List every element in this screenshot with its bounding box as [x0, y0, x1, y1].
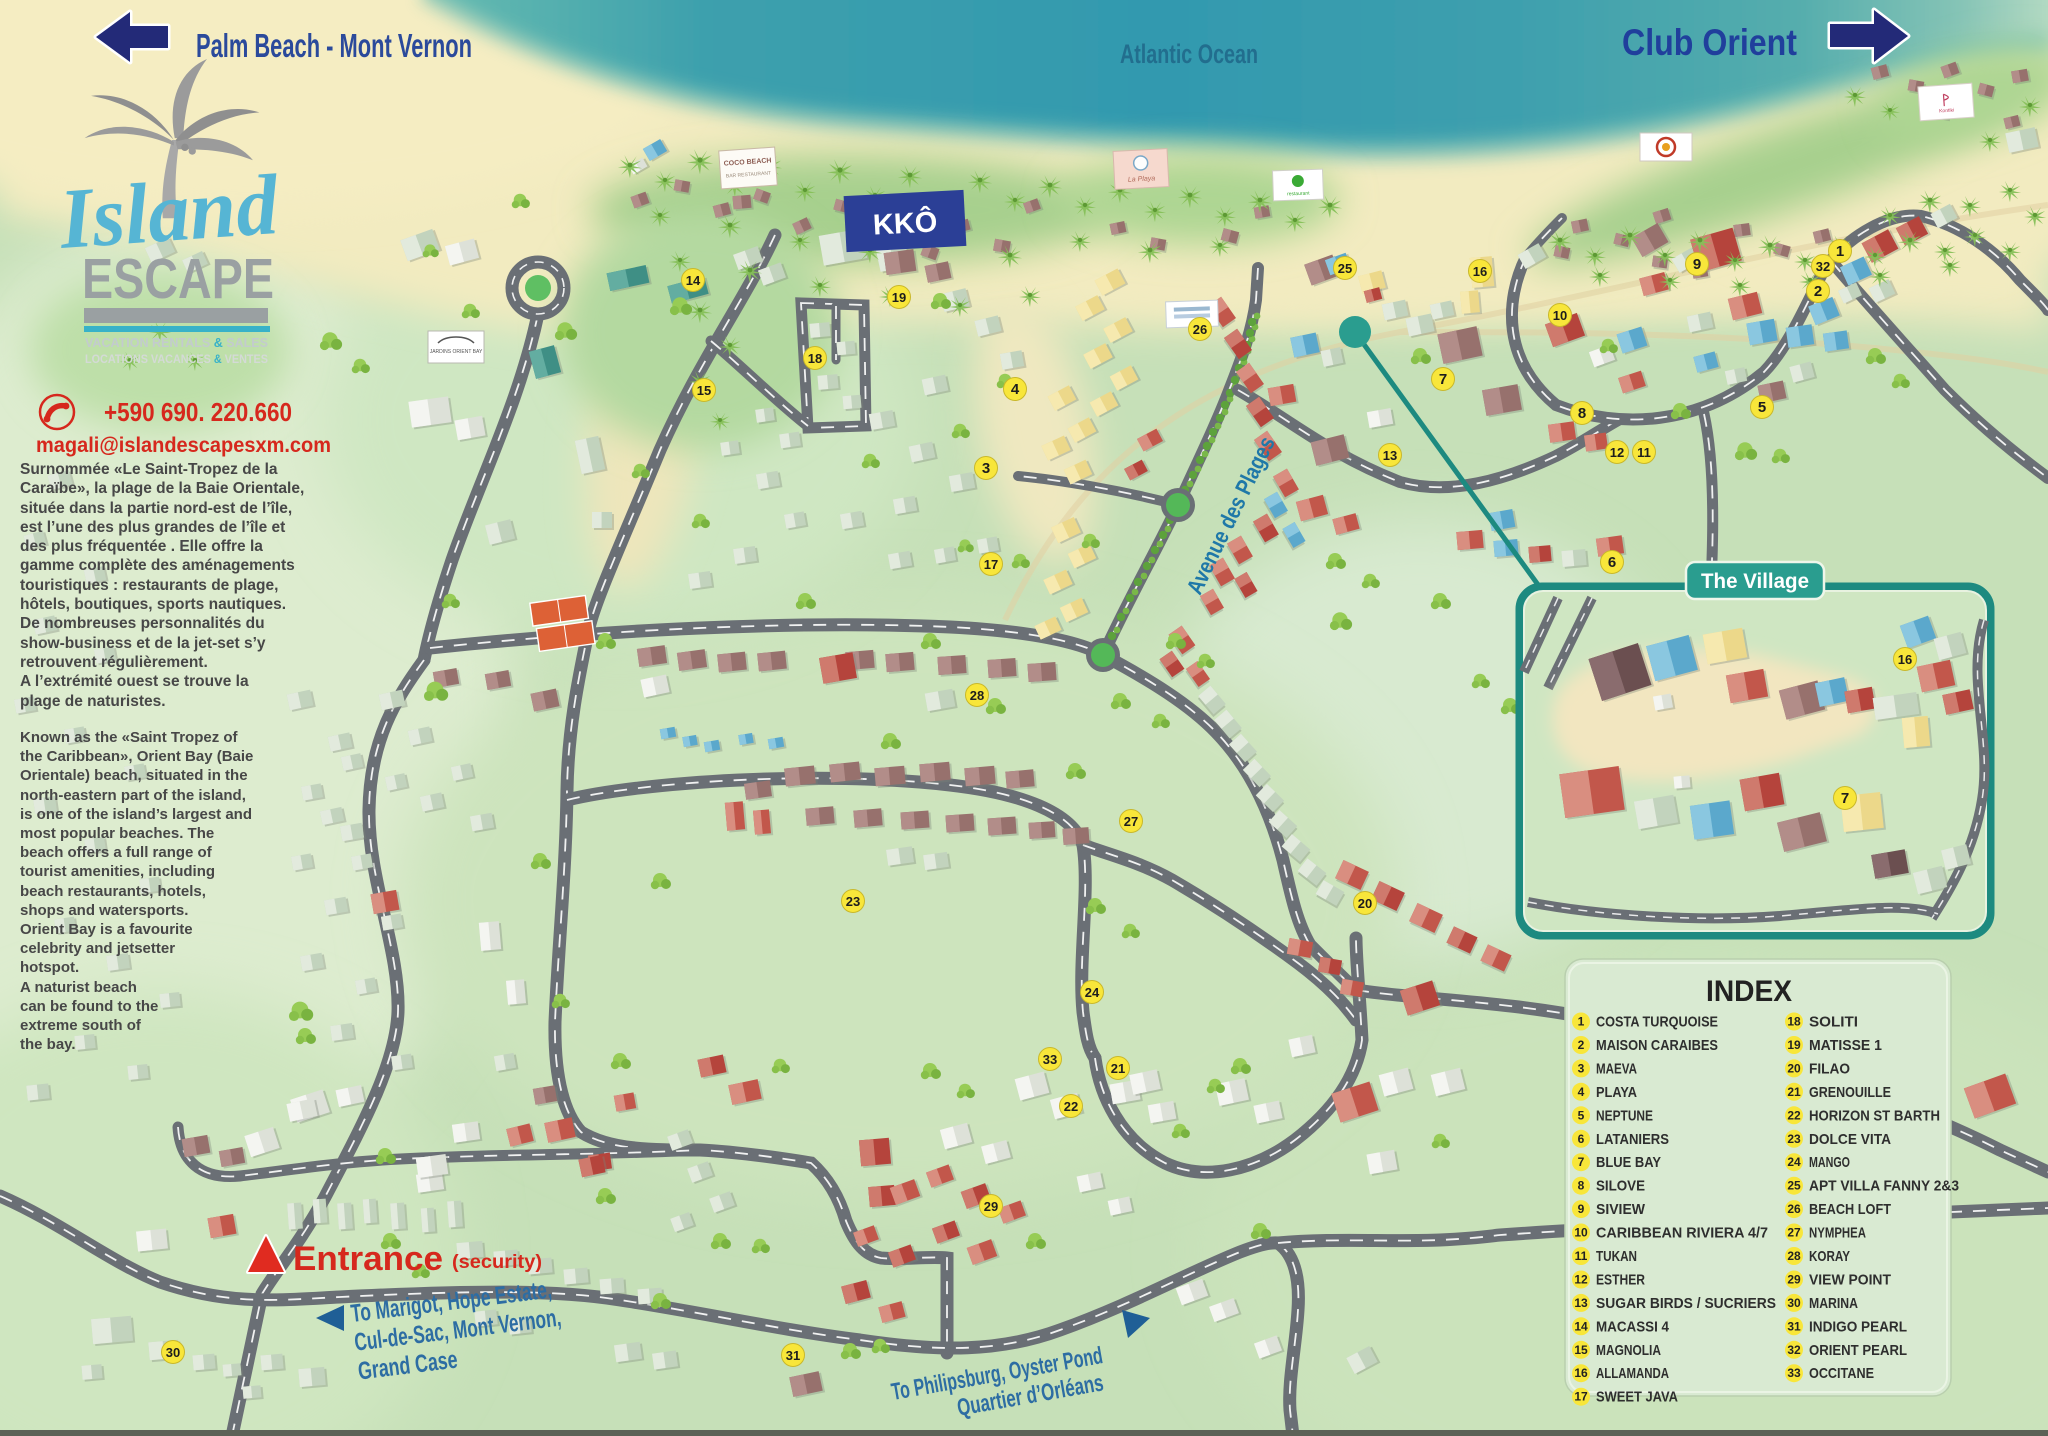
svg-text:ESTHER: ESTHER: [1596, 1273, 1645, 1289]
svg-text:22: 22: [1787, 1108, 1801, 1122]
svg-text:23: 23: [846, 894, 860, 909]
svg-text:située dans la partie nord-est: située dans la partie nord-est de l’île,: [20, 500, 292, 517]
svg-text:14: 14: [686, 273, 701, 288]
svg-text:MAISON CARAIBES: MAISON CARAIBES: [1596, 1038, 1718, 1054]
svg-text:COSTA TURQUOISE: COSTA TURQUOISE: [1596, 1015, 1718, 1031]
svg-text:La Playa: La Playa: [1128, 175, 1156, 183]
svg-text:27: 27: [1124, 814, 1138, 829]
svg-text:16: 16: [1473, 264, 1487, 279]
svg-text:FILAO: FILAO: [1809, 1061, 1850, 1077]
svg-text:11: 11: [1637, 445, 1651, 460]
svg-text:hotspot.: hotspot.: [20, 959, 79, 976]
svg-text:LATANIERS: LATANIERS: [1596, 1132, 1669, 1148]
svg-text:celebrity and jetsetter: celebrity and jetsetter: [20, 940, 175, 957]
svg-text:est l’une des plus grandes de: est l’une des plus grandes de l’île et: [20, 519, 285, 536]
svg-text:extreme south of: extreme south of: [20, 1017, 142, 1034]
svg-text:28: 28: [1787, 1249, 1801, 1263]
svg-text:18: 18: [808, 351, 822, 366]
svg-text:restaurant: restaurant: [1287, 191, 1310, 198]
svg-text:25: 25: [1787, 1179, 1801, 1193]
svg-text:3: 3: [1578, 1061, 1585, 1075]
svg-text:can be found to the: can be found to the: [20, 998, 158, 1015]
svg-text:30: 30: [1787, 1296, 1801, 1310]
svg-text:4: 4: [1011, 381, 1020, 398]
svg-text:MAEVA: MAEVA: [1596, 1061, 1637, 1077]
svg-text:7: 7: [1841, 790, 1849, 807]
svg-text:7: 7: [1578, 1155, 1585, 1169]
svg-text:SIVIEW: SIVIEW: [1596, 1202, 1645, 1218]
svg-text:LOCATIONS VACANCES & VENTES: LOCATIONS VACANCES & VENTES: [85, 352, 268, 366]
svg-text:16: 16: [1574, 1366, 1588, 1380]
svg-text:16: 16: [1898, 652, 1912, 667]
svg-text:10: 10: [1553, 308, 1567, 323]
svg-text:17: 17: [1574, 1390, 1588, 1404]
svg-text:SWEET JAVA: SWEET JAVA: [1596, 1390, 1678, 1406]
svg-text:3: 3: [982, 460, 990, 477]
svg-text:(security): (security): [452, 1252, 542, 1273]
svg-text:1: 1: [1578, 1015, 1585, 1029]
svg-text:MAGNOLIA: MAGNOLIA: [1596, 1343, 1661, 1359]
svg-text:des plus fréquentée . Elle off: des plus fréquentée . Elle offre la: [20, 538, 263, 555]
svg-text:retrouvent régulièrement.: retrouvent régulièrement.: [20, 654, 208, 671]
svg-text:11: 11: [1575, 1249, 1588, 1263]
svg-text:5: 5: [1578, 1108, 1585, 1122]
svg-text:15: 15: [697, 383, 711, 398]
svg-text:NEPTUNE: NEPTUNE: [1596, 1108, 1653, 1124]
svg-text:ALLAMANDA: ALLAMANDA: [1596, 1366, 1669, 1382]
svg-text:31: 31: [786, 1348, 800, 1363]
svg-text:MANGO: MANGO: [1809, 1155, 1850, 1171]
svg-text:8: 8: [1578, 1179, 1585, 1193]
svg-text:INDIGO PEARL: INDIGO PEARL: [1809, 1319, 1907, 1335]
svg-text:27: 27: [1787, 1226, 1801, 1240]
svg-text:9: 9: [1693, 256, 1701, 273]
svg-text:9: 9: [1578, 1202, 1585, 1216]
svg-text:26: 26: [1787, 1202, 1801, 1216]
svg-text:SOLITI: SOLITI: [1809, 1015, 1858, 1031]
svg-text:The Village: The Village: [1701, 570, 1809, 593]
svg-text:30: 30: [166, 1345, 180, 1360]
svg-text:beach offers a full range of: beach offers a full range of: [20, 844, 213, 861]
svg-text:show-business et de la jet-set: show-business et de la jet-set s’y: [20, 635, 266, 652]
svg-text:Palm Beach - Mont Vernon: Palm Beach - Mont Vernon: [196, 27, 472, 64]
svg-text:Orientale) beach, situated in: Orientale) beach, situated in the: [20, 767, 248, 784]
svg-text:15: 15: [1574, 1343, 1588, 1357]
svg-text:APT VILLA FANNY 2&3: APT VILLA FANNY 2&3: [1809, 1179, 1959, 1195]
svg-text:23: 23: [1787, 1132, 1801, 1146]
svg-text:Club Orient: Club Orient: [1622, 22, 1797, 63]
svg-text:26: 26: [1193, 322, 1207, 337]
svg-text:CARIBBEAN RIVIERA 4/7: CARIBBEAN RIVIERA 4/7: [1596, 1226, 1768, 1242]
svg-text:29: 29: [984, 1199, 998, 1214]
svg-text:TUKAN: TUKAN: [1596, 1249, 1637, 1265]
svg-text:MATISSE 1: MATISSE 1: [1809, 1038, 1882, 1054]
svg-text:PLAYA: PLAYA: [1596, 1085, 1637, 1101]
svg-text:12: 12: [1610, 445, 1624, 460]
svg-text:De nombreuses personnalités du: De nombreuses personnalités du: [20, 615, 265, 632]
svg-text:20: 20: [1787, 1061, 1801, 1075]
svg-text:24: 24: [1787, 1155, 1801, 1169]
svg-text:beach restaurants, hotels,: beach restaurants, hotels,: [20, 883, 206, 900]
svg-text:14: 14: [1574, 1319, 1588, 1333]
svg-text:tourist amenities, including: tourist amenities, including: [20, 863, 215, 880]
svg-text:is one of the island’s largest: is one of the island’s largest and: [20, 806, 252, 823]
svg-text:7: 7: [1439, 371, 1447, 388]
svg-text:plage de naturistes.: plage de naturistes.: [20, 693, 166, 710]
svg-text:MARINA: MARINA: [1809, 1296, 1858, 1312]
svg-text:ORIENT PEARL: ORIENT PEARL: [1809, 1343, 1907, 1359]
svg-text:VACATION RENTALS & SALES: VACATION RENTALS & SALES: [85, 335, 268, 350]
svg-text:DOLCE VITA: DOLCE VITA: [1809, 1132, 1891, 1148]
svg-text:6: 6: [1608, 554, 1616, 571]
svg-text:29: 29: [1787, 1273, 1801, 1287]
svg-text:8: 8: [1578, 405, 1586, 422]
svg-text:most popular beaches. The: most popular beaches. The: [20, 825, 214, 842]
svg-text:the bay.: the bay.: [20, 1036, 76, 1053]
svg-text:13: 13: [1574, 1296, 1588, 1310]
svg-text:6: 6: [1578, 1132, 1585, 1146]
svg-text:OCCITANE: OCCITANE: [1809, 1366, 1874, 1382]
svg-text:hôtels, boutiques, sports naut: hôtels, boutiques, sports nautiques.: [20, 596, 286, 613]
svg-text:gamme complète des aménagement: gamme complète des aménagements: [20, 557, 295, 574]
svg-text:2: 2: [1814, 283, 1822, 300]
svg-text:2: 2: [1578, 1038, 1585, 1052]
svg-text:A naturist beach: A naturist beach: [20, 979, 137, 996]
svg-text:28: 28: [970, 688, 984, 703]
svg-text:21: 21: [1111, 1061, 1125, 1076]
svg-text:shops and watersports.: shops and watersports.: [20, 902, 188, 919]
svg-text:Entrance: Entrance: [293, 1240, 443, 1278]
svg-text:19: 19: [892, 290, 906, 305]
svg-text:32: 32: [1816, 259, 1830, 274]
svg-text:25: 25: [1338, 261, 1352, 276]
svg-text:BLUE BAY: BLUE BAY: [1596, 1155, 1661, 1171]
svg-text:31: 31: [1787, 1319, 1801, 1333]
svg-text:18: 18: [1787, 1015, 1801, 1029]
svg-text:Orient Bay is a favourite: Orient Bay is a favourite: [20, 921, 193, 938]
svg-text:32: 32: [1787, 1343, 1801, 1357]
svg-text:VIEW POINT: VIEW POINT: [1809, 1273, 1891, 1289]
svg-text:KORAY: KORAY: [1809, 1249, 1850, 1265]
svg-text:HORIZON ST BARTH: HORIZON ST BARTH: [1809, 1108, 1940, 1124]
svg-text:SILOVE: SILOVE: [1596, 1179, 1645, 1195]
svg-text:33: 33: [1787, 1366, 1801, 1380]
svg-text:12: 12: [1574, 1273, 1588, 1287]
svg-text:10: 10: [1574, 1226, 1588, 1240]
svg-text:MACASSI 4: MACASSI 4: [1596, 1319, 1670, 1335]
svg-text:the Caribbean», Orient Bay (Ba: the Caribbean», Orient Bay (Baie: [20, 748, 253, 765]
svg-text:24: 24: [1085, 985, 1100, 1000]
svg-text:KKÔ: KKÔ: [872, 204, 938, 241]
svg-text:NYMPHEA: NYMPHEA: [1809, 1226, 1866, 1242]
svg-text:20: 20: [1358, 896, 1372, 911]
svg-text:magali@islandescapesxm.com: magali@islandescapesxm.com: [36, 434, 331, 457]
svg-text:Kontiki: Kontiki: [1939, 107, 1954, 114]
svg-text:Known as the «Saint Tropez of: Known as the «Saint Tropez of: [20, 729, 239, 746]
svg-text:21: 21: [1787, 1085, 1801, 1099]
svg-text:ESCAPE: ESCAPE: [82, 247, 274, 311]
svg-text:A l’extrémité ouest se trouve: A l’extrémité ouest se trouve la: [20, 673, 249, 690]
svg-text:19: 19: [1787, 1038, 1801, 1052]
svg-text:BEACH LOFT: BEACH LOFT: [1809, 1202, 1891, 1218]
svg-text:5: 5: [1758, 399, 1766, 416]
svg-text:INDEX: INDEX: [1706, 975, 1792, 1008]
svg-text:Caraïbe», la plage de la Baie: Caraïbe», la plage de la Baie Orientale,: [20, 480, 304, 497]
svg-text:Surnommée «Le Saint-Tropez de: Surnommée «Le Saint-Tropez de la: [20, 461, 278, 478]
svg-text:touristiques : restaurants de: touristiques : restaurants de plage,: [20, 577, 278, 594]
svg-text:22: 22: [1064, 1099, 1078, 1114]
svg-text:JARDINS ORIENT BAY: JARDINS ORIENT BAY: [430, 349, 483, 355]
svg-text:GRENOUILLE: GRENOUILLE: [1809, 1085, 1891, 1101]
svg-text:13: 13: [1383, 448, 1397, 463]
svg-text:17: 17: [984, 557, 998, 572]
svg-text:north-eastern part of the isla: north-eastern part of the island,: [20, 787, 246, 804]
svg-text:+590 690. 220.660: +590 690. 220.660: [104, 397, 292, 427]
svg-text:1: 1: [1836, 243, 1844, 260]
svg-text:4: 4: [1578, 1085, 1585, 1099]
svg-text:Atlantic Ocean: Atlantic Ocean: [1120, 39, 1258, 69]
svg-text:33: 33: [1043, 1052, 1057, 1067]
svg-text:SUGAR BIRDS / SUCRIERS: SUGAR BIRDS / SUCRIERS: [1596, 1296, 1776, 1312]
